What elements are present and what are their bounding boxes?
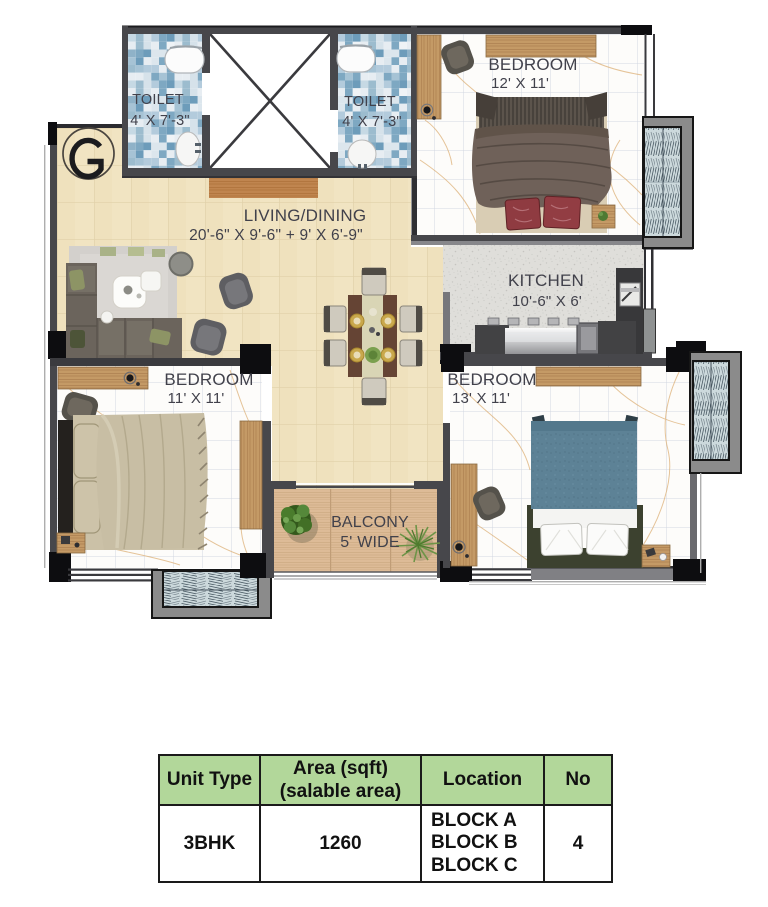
svg-text:TOILET: TOILET [344,94,396,110]
svg-text:BEDROOM: BEDROOM [488,55,577,74]
svg-text:4' X 7'-3": 4' X 7'-3" [342,114,401,130]
svg-text:10'-6" X 6': 10'-6" X 6' [512,293,582,310]
svg-text:BEDROOM: BEDROOM [447,370,536,389]
svg-text:11' X 11': 11' X 11' [167,390,224,407]
svg-text:4' X 7'-3": 4' X 7'-3" [130,113,189,129]
svg-text:BALCONY: BALCONY [331,514,409,531]
svg-text:5' WIDE: 5' WIDE [340,534,400,551]
svg-text:TOILET: TOILET [132,92,184,108]
svg-text:20'-6" X 9'-6" + 9' X 6'-9": 20'-6" X 9'-6" + 9' X 6'-9" [189,227,363,244]
svg-text:13' X 11': 13' X 11' [452,390,510,407]
svg-text:12' X 11': 12' X 11' [491,75,549,92]
svg-text:BEDROOM: BEDROOM [164,370,253,389]
svg-text:LIVING/DINING: LIVING/DINING [244,206,367,225]
svg-text:KITCHEN: KITCHEN [508,271,584,290]
